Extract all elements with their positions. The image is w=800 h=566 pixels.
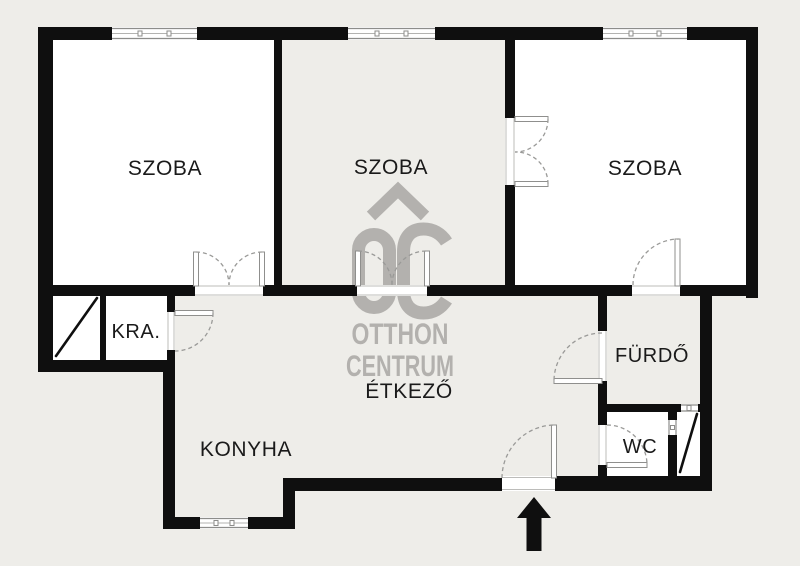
window-top-middle xyxy=(348,27,435,40)
label-bathroom: FÜRDŐ xyxy=(615,344,689,367)
label-pantry: KRA. xyxy=(111,321,160,343)
label-wc: WC xyxy=(623,436,658,458)
window-wc-vent xyxy=(668,420,677,435)
label-dining: ÉTKEZŐ xyxy=(365,380,453,403)
label-kitchen: KONYHA xyxy=(200,438,292,461)
window-bathroom-shaft xyxy=(681,404,698,412)
label-szoba-middle: SZOBA xyxy=(354,156,428,179)
watermark-line1: OTTHON xyxy=(352,318,449,351)
window-kitchen xyxy=(200,517,248,529)
label-szoba-right: SZOBA xyxy=(608,157,682,180)
window-top-right xyxy=(603,27,687,40)
floorplan-drawing: OTTHON CENTRUM xyxy=(0,0,800,566)
label-szoba-left: SZOBA xyxy=(128,157,202,180)
floorplan-page: OTTHON CENTRUM xyxy=(0,0,800,566)
watermark-line2: CENTRUM xyxy=(346,350,454,383)
window-top-left xyxy=(112,27,197,40)
